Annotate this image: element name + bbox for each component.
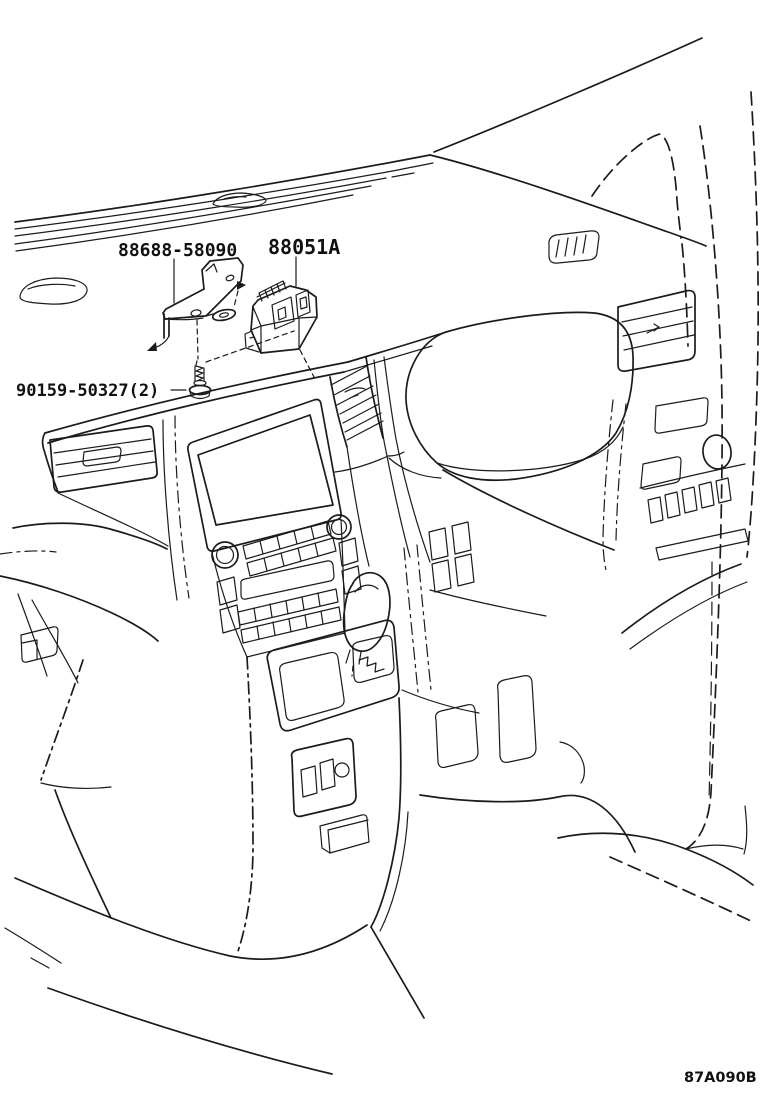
knee-panel-blank (21, 627, 58, 662)
cd-slot (241, 561, 334, 599)
lower-console-and-floor (5, 627, 424, 1074)
driver-vent (618, 291, 695, 372)
left-tweeter-grille (20, 278, 87, 304)
start-button (701, 433, 733, 471)
shifter-console (267, 573, 399, 853)
left-dash-vent (50, 426, 157, 492)
dash-top-vent (549, 231, 599, 263)
power-outlet (335, 763, 349, 777)
callout-leader-lines (171, 257, 314, 390)
bracket-part-drawing (147, 258, 243, 351)
a-pillar-line (434, 38, 702, 152)
steering-column-area (402, 590, 635, 852)
wheel-arch-line (5, 928, 61, 963)
hidden-line-hole-to-screw (197, 320, 198, 359)
part-number-screw: 90159-50327(2) (16, 381, 159, 401)
a-pillar-and-door-lines (434, 38, 758, 849)
hidden-line-ecu-to-dash (300, 350, 314, 377)
driver-button-row (648, 478, 731, 523)
clock-bezel (641, 457, 681, 489)
part-number-bracket: 88688-58090 (118, 240, 237, 261)
navigation-bezel (188, 400, 341, 552)
navigation-unit (188, 400, 341, 552)
console-pocket (320, 815, 369, 853)
figure-code: 87A090B (684, 1070, 757, 1086)
mount-direction-arrow (237, 281, 246, 290)
climate-button-row-1 (238, 589, 338, 625)
left-knee-bolster-lines (0, 523, 167, 683)
part-number-computer: 88051A (268, 235, 340, 259)
dashboard-parts-diagram: 88688-58090 88051A 90159-50327(2) 87A090… (0, 0, 760, 1112)
shift-gate (353, 636, 394, 683)
audio-panel (212, 515, 361, 657)
navigation-screen (198, 415, 333, 525)
hidden-line-screw-to-ecu (206, 331, 294, 362)
console-storage-tray (280, 653, 345, 721)
parts-catalog-page: 88688-58090 88051A 90159-50327(2) 87A090… (0, 0, 760, 1112)
small-lid (655, 398, 708, 433)
instrument-cluster (335, 312, 633, 570)
windshield-defroster-lines (15, 155, 706, 304)
ecu-part-drawing (245, 281, 317, 353)
driver-switch-bank (429, 522, 474, 592)
